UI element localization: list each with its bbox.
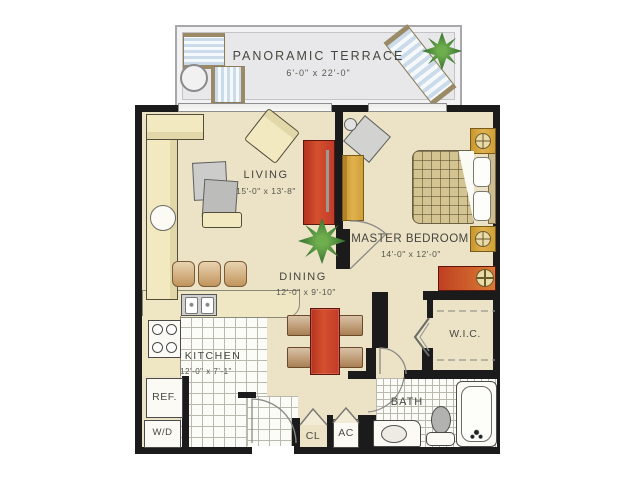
pillow [473,157,491,187]
sectional-sofa [146,114,204,140]
entry-opening [252,446,294,454]
dining-name: DINING [253,271,353,283]
table-lamp [475,231,491,247]
table-lamp [476,269,494,287]
wall [238,392,256,398]
terrace-name: PANORAMIC TERRACE [175,49,462,63]
tv-screen [326,150,329,212]
dining-chair [339,315,363,336]
walk-in-closet-label: W.I.C. [437,328,493,340]
window [178,103,332,112]
terrace-dims: 6'-0" x 22'-0" [175,68,462,78]
kitchen-name: KITCHEN [168,350,258,362]
window [368,103,447,112]
table-lamp [475,133,491,149]
wall [348,371,376,379]
master-bedroom-dims: 14'-0" x 12'-0" [355,249,467,259]
side-table [344,118,357,131]
wall [182,376,189,448]
living-dims: 15'-0" x 13'-8" [216,186,316,196]
bar-stool [224,261,247,287]
refrigerator-label: REF. [146,391,183,403]
side-table [150,205,176,231]
bathtub [456,381,497,447]
wall [372,292,388,348]
pillow [473,191,491,221]
dining-chair [339,347,363,368]
toilet [431,406,451,434]
bar-stool [198,261,221,287]
wall [423,291,500,300]
foyer-floor [247,396,298,446]
bath-label: BATH [382,396,432,408]
vanity-sink [381,425,407,443]
dresser [342,155,364,221]
air-conditioner-label: AC [332,427,360,439]
wall [404,370,500,379]
floor-plan: PANORAMIC TERRACE 6'-0" x 22'-0" LIVING … [0,0,640,480]
washer-dryer-label: W/D [144,427,181,438]
toilet-tank [426,432,455,446]
bar-stool [172,261,195,287]
dining-chair [287,347,311,368]
master-bedroom-name: MASTER BEDROOM [350,233,470,245]
dining-dims: 12'-0" x 9'-10" [256,287,356,297]
dining-table [310,308,340,375]
wall [336,229,350,269]
tv-console [303,140,335,225]
dining-chair [287,315,311,336]
kitchen-dims: 12'-0" x 7'-1" [166,367,246,376]
living-name: LIVING [216,169,316,181]
ottoman [202,212,242,228]
wall [427,300,433,318]
kitchen-sink [181,294,217,316]
closet-label: CL [298,430,328,442]
